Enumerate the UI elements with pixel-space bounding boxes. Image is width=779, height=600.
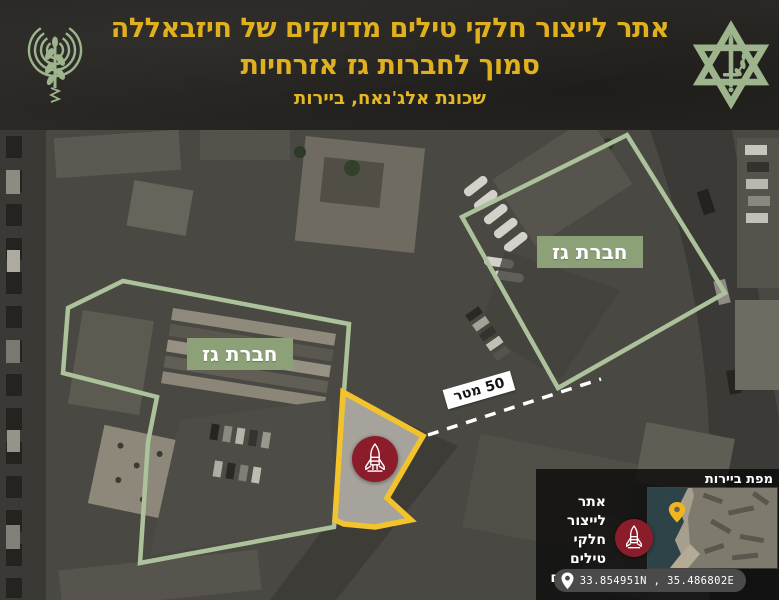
page-subtitle: שכונת אלג'נאח, ביירות <box>90 86 690 112</box>
header-titles: אתר לייצור חלקי טילים מדויקים של חיזבאלל… <box>90 10 690 112</box>
gas-company-label-1: חברת גז <box>187 338 293 370</box>
coordinates-value: 33.854951N , 35.486802E <box>576 575 746 587</box>
page-title-line-2: סמוך לחברות גז אזרחיות <box>90 47 690 84</box>
inset-title: מפת ביירות <box>705 472 773 487</box>
gas-company-label-2: חברת גז <box>537 236 643 268</box>
coordinates-bar: 33.854951N , 35.486802E <box>554 569 746 592</box>
idf-star-sword-olive-icon <box>691 18 771 110</box>
location-pin-icon <box>559 571 576 591</box>
beirut-inset-panel: מפת ביירות <box>536 469 779 600</box>
header-banner: אתר לייצור חלקי טילים מדויקים של חיזבאלל… <box>0 0 779 130</box>
rocket-icon <box>615 519 653 557</box>
radio-antenna-olive-branch-icon <box>10 14 100 110</box>
page-title-line-1: אתר לייצור חלקי טילים מדויקים של חיזבאלל… <box>90 10 690 47</box>
inset-site-line-1: אתר לייצור <box>536 493 606 531</box>
rocket-icon <box>352 436 398 482</box>
inset-site-line-2: חלקי טילים <box>536 531 606 569</box>
infographic-page: אתר לייצור חלקי טילים מדויקים של חיזבאלל… <box>0 0 779 600</box>
satellite-map: חברת גז חברת גז 50 מטר מפת ביירות <box>0 130 779 600</box>
beirut-minimap <box>648 488 777 568</box>
